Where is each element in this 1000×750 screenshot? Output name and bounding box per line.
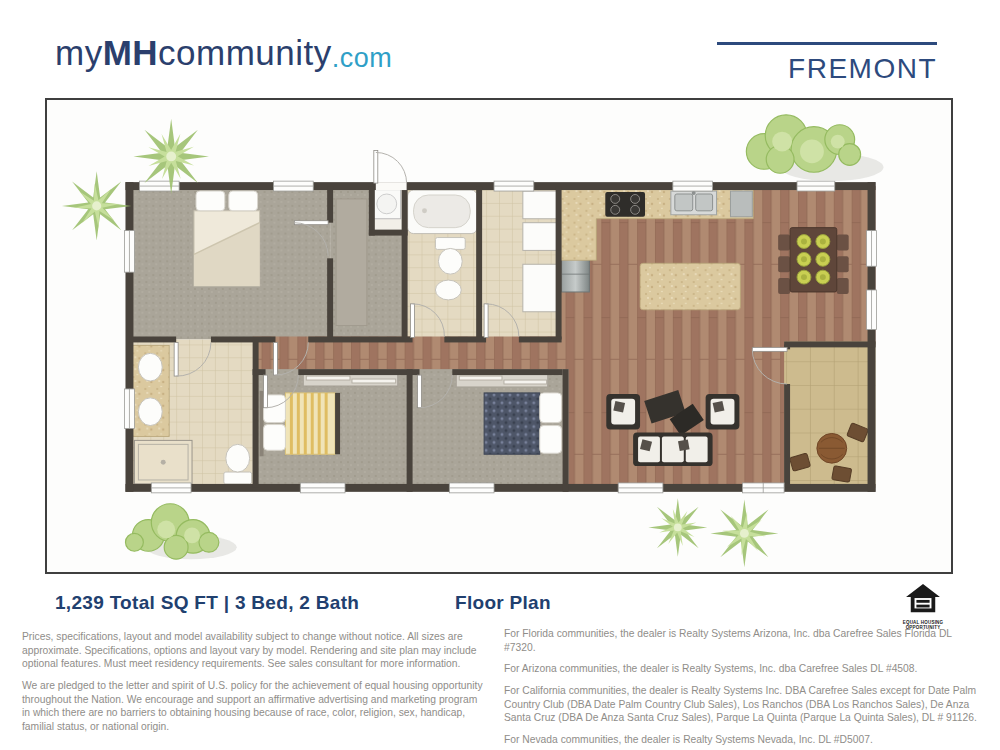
window-icon (449, 483, 494, 493)
plant-icon (648, 498, 707, 557)
bathtub-icon (408, 190, 478, 234)
window-icon (124, 231, 134, 273)
refrigerator-icon (562, 256, 590, 292)
window-icon (494, 181, 534, 191)
plant-icon (62, 171, 131, 240)
armchair-icon (706, 394, 740, 430)
logo-dotcom: .com (332, 43, 393, 73)
logo-mh: MH (103, 33, 158, 72)
plant-icon (710, 500, 778, 568)
disclaimer-left-column: Prices, specifications, layout and model… (22, 630, 486, 742)
window-icon (867, 231, 877, 267)
disclaimer-paragraph: Prices, specifications, layout and model… (22, 630, 486, 671)
disclaimer-paragraph: For California communities, the dealer i… (504, 684, 978, 725)
front-door-icon (374, 150, 407, 190)
bath-sink-icon (435, 280, 461, 300)
mymhcommunity-logo: myMHcommunity.com (55, 33, 392, 73)
dining-table-icon (778, 228, 849, 294)
header-rule (717, 42, 937, 45)
vanity-sink-icon (138, 398, 162, 426)
shower-icon (134, 440, 192, 484)
stove-icon (605, 192, 645, 217)
closet-sliding-doors (456, 373, 547, 387)
kitchen-sink-icon (671, 191, 717, 215)
floor-plan-illustration (47, 100, 951, 572)
window-icon (797, 181, 835, 191)
equal-housing-house-icon (904, 583, 942, 615)
window-icon (300, 483, 345, 493)
bush-icon (125, 504, 218, 559)
armchair-icon (606, 394, 640, 430)
equal-housing-logo: EQUAL HOUSING OPPORTUNITY (899, 583, 947, 630)
specs-text: 1,239 Total SQ FT | 3 Bed, 2 Bath (55, 592, 359, 614)
window-icon (273, 181, 313, 191)
disclaimer-paragraph: For Nevada communities, the dealer is Re… (504, 733, 978, 747)
window-icon (867, 290, 877, 330)
disclaimer-right-column: For Florida communities, the dealer is R… (504, 627, 978, 750)
closet-rug (336, 199, 367, 326)
logo-community: community (158, 33, 332, 72)
plant-icon (133, 119, 208, 194)
window-icon (124, 389, 134, 429)
window-icon (673, 181, 713, 191)
floor-plan-page: myMHcommunity.com FREMONT (0, 0, 1000, 750)
floor-plan-figure (45, 98, 953, 574)
model-name: FREMONT (617, 53, 937, 85)
toilet-icon (224, 444, 252, 484)
window-icon (151, 483, 191, 493)
sofa-icon (633, 432, 712, 466)
kitchen-island (640, 263, 740, 310)
window-icon (139, 181, 179, 191)
logo-my: my (55, 33, 103, 72)
disclaimer-paragraph: For Arizona communities, the dealer is R… (504, 662, 978, 676)
dishwasher-icon (730, 191, 752, 217)
vanity-sink-icon (138, 353, 162, 381)
window-icon (618, 483, 663, 493)
water-heater-icon (373, 189, 401, 219)
disclaimer-paragraph: We are pledged to the letter and spirit … (22, 679, 486, 734)
sliding-door-icon (742, 483, 784, 493)
view-label: Floor Plan (455, 592, 551, 614)
disclaimer-paragraph: For Florida communities, the dealer is R… (504, 627, 978, 654)
